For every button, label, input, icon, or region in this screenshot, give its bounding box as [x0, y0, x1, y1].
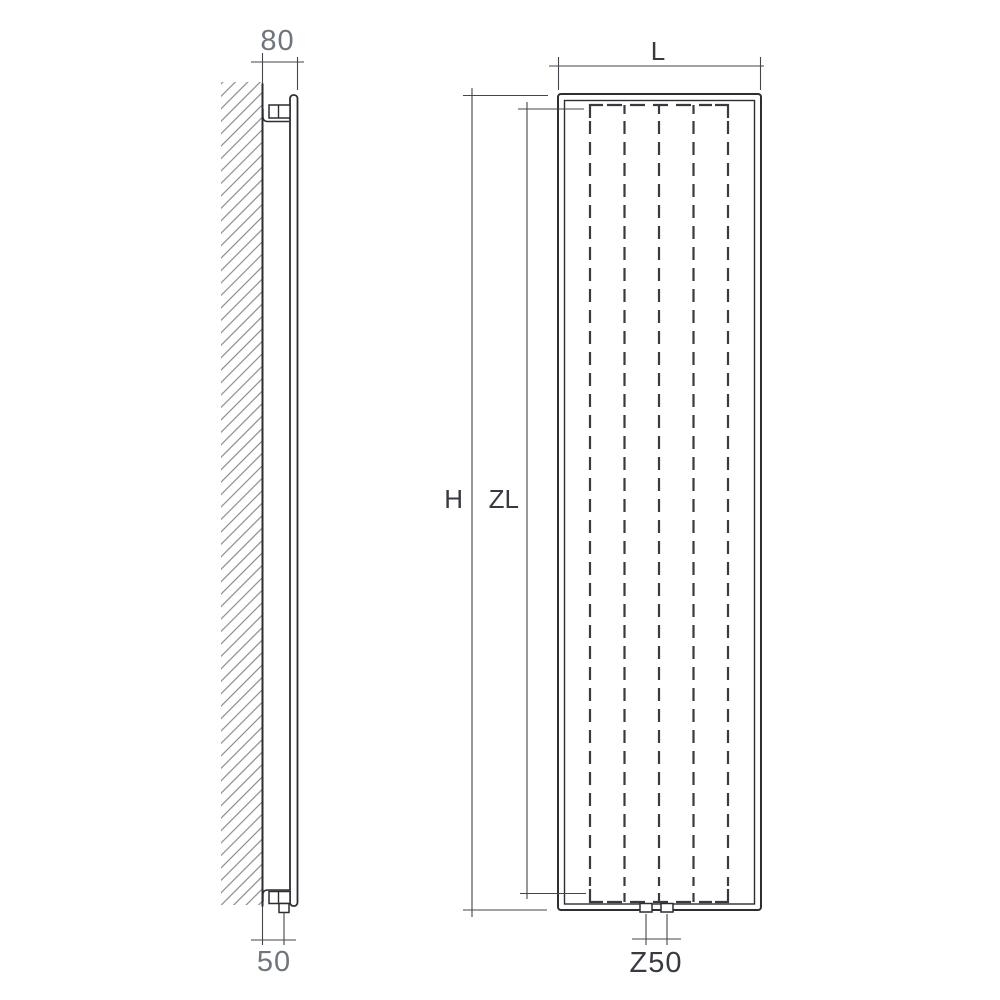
- hidden-line-corner: [715, 889, 728, 902]
- dimension-L: L: [549, 36, 764, 90]
- dimension-label-80: 80: [260, 25, 294, 57]
- dimension-Z50: Z50: [630, 914, 683, 979]
- hidden-line-corner: [590, 105, 603, 118]
- heating-element-hidden-lines: [590, 105, 728, 902]
- radiator-panel-profile: [290, 95, 298, 906]
- connection-port-right: [661, 904, 673, 913]
- hidden-line-corner: [715, 105, 728, 118]
- dimension-label-50: 50: [257, 946, 291, 978]
- front-view: L H ZL Z50: [444, 36, 764, 979]
- mounting-bracket-bottom: [263, 890, 290, 913]
- dimension-label-H: H: [444, 484, 463, 514]
- dimension-80: 80: [251, 25, 304, 90]
- bracket-body: [269, 105, 290, 118]
- dimension-50: 50: [251, 906, 296, 978]
- dimension-ZL: ZL: [489, 102, 586, 899]
- side-view: 80 50: [221, 25, 304, 978]
- wall-hatch: [221, 82, 262, 905]
- dimension-label-Z50: Z50: [630, 947, 683, 979]
- bracket-body: [269, 892, 290, 904]
- connection-stub: [279, 904, 289, 913]
- dimension-label-ZL: ZL: [489, 484, 519, 514]
- hidden-line-corner: [590, 889, 603, 902]
- connection-port-left: [640, 904, 652, 913]
- mounting-bracket-top: [263, 105, 290, 122]
- dimension-label-L: L: [651, 36, 665, 66]
- technical-drawing: 80 50: [0, 0, 1000, 1000]
